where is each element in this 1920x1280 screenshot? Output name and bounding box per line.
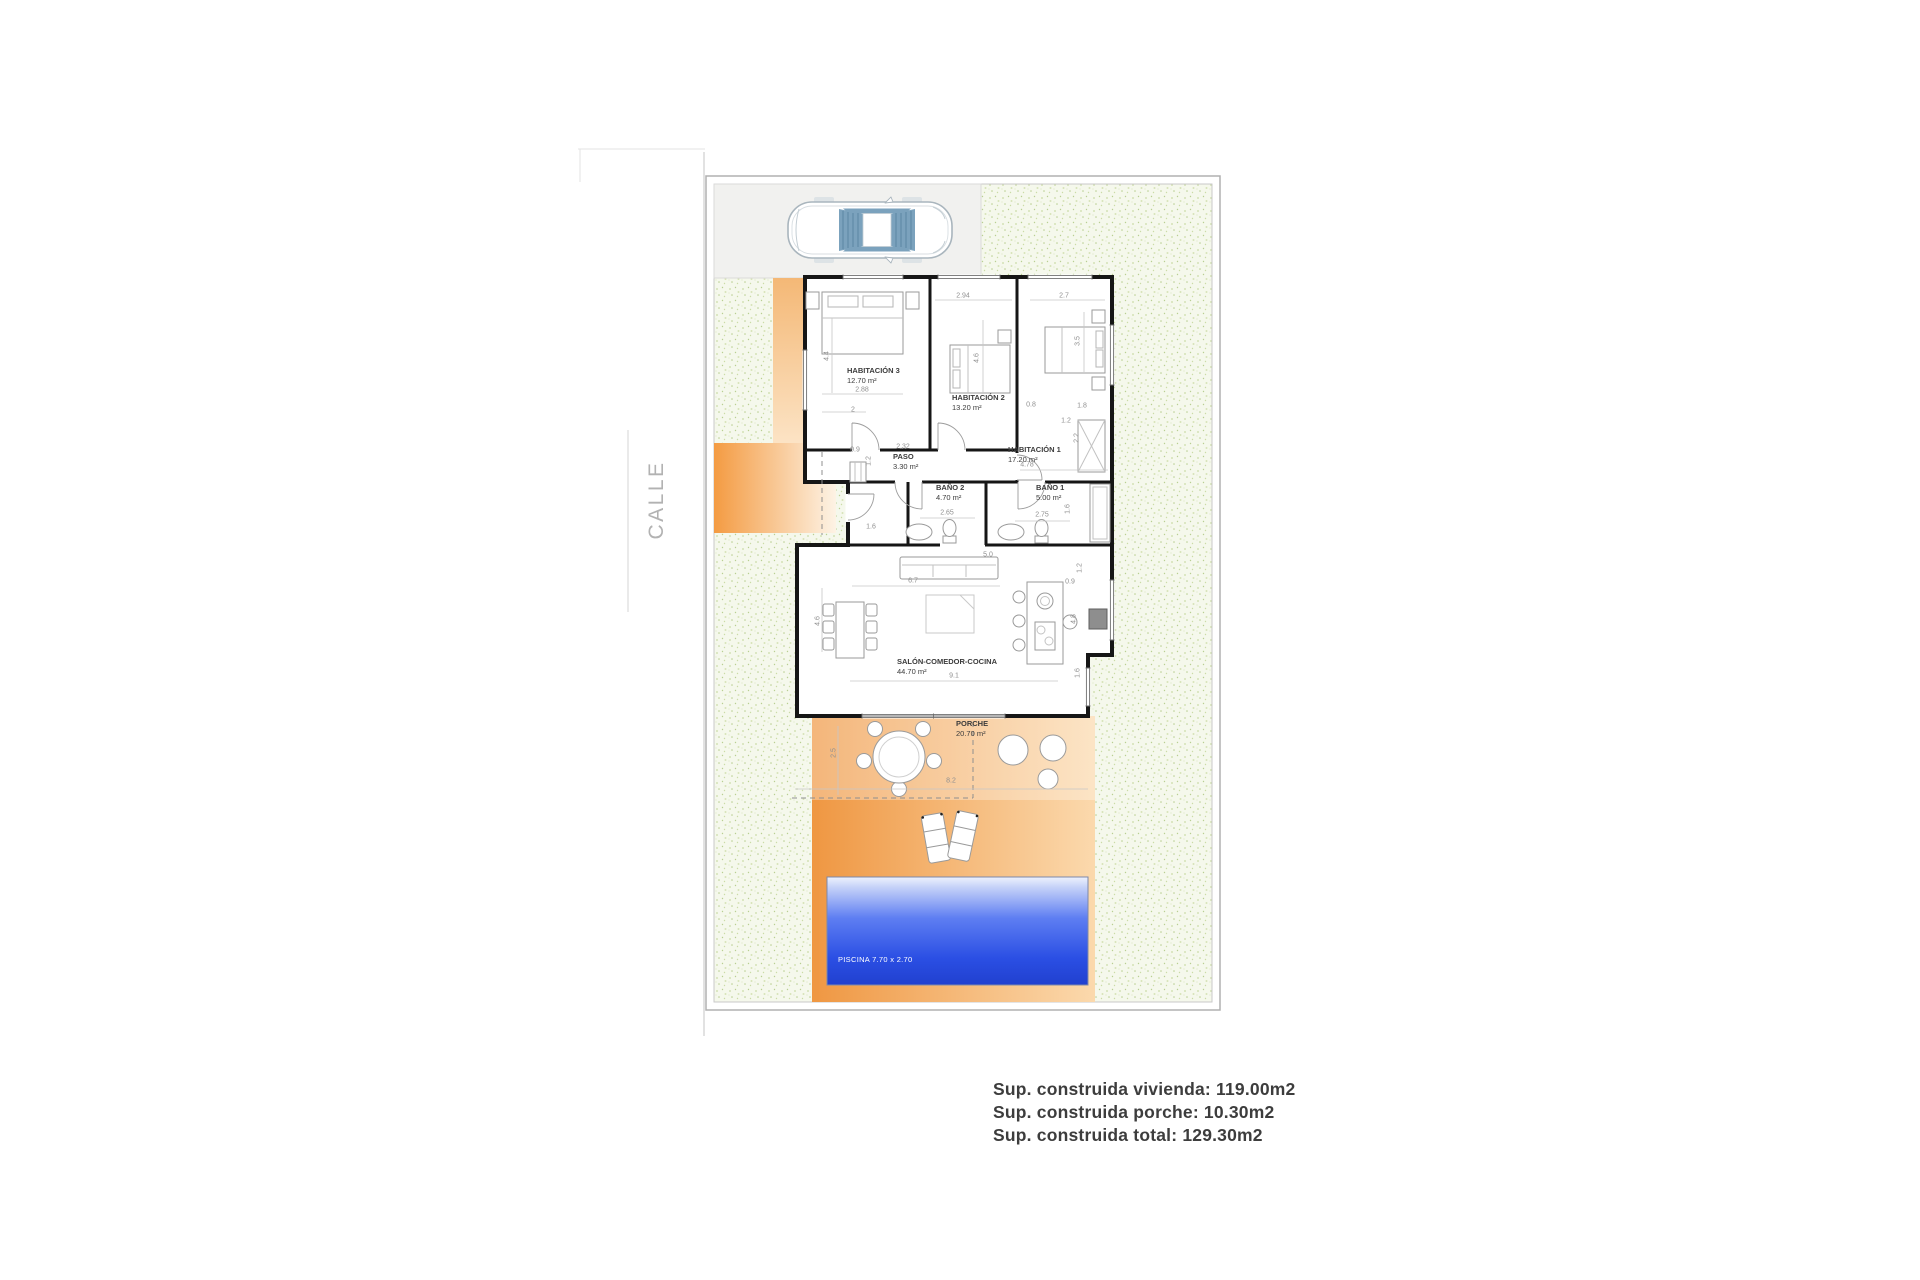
dimension-label: 4.6: [815, 616, 822, 626]
dimension-label: 5.0: [983, 552, 993, 559]
dimension-label: 1.8: [1077, 403, 1087, 410]
room-label-bano-1: BAÑO 1 5.00 m²: [1036, 483, 1064, 502]
dimension-label: 1.2: [1077, 563, 1084, 573]
dimension-label: 0.9: [1065, 579, 1075, 586]
car-top-view: [788, 197, 952, 263]
dimension-label: 2.32: [896, 444, 910, 451]
dimension-label: 2.94: [956, 293, 970, 300]
dimension-label: 4.78: [1020, 462, 1034, 469]
dimension-label: 2.5: [831, 748, 838, 758]
dimension-label: 2.65: [940, 510, 954, 517]
pool: [827, 877, 1088, 985]
dimension-label: 8.2: [946, 778, 956, 785]
room-label-habitacion-3: HABITACIÓN 3 12.70 m²: [847, 366, 900, 385]
dimension-label: 1.6: [1065, 504, 1072, 514]
room-label-habitacion-2: HABITACIÓN 2 13.20 m²: [952, 393, 1005, 412]
room-label-salon: SALÓN-COMEDOR-COCINA 44.70 m²: [897, 657, 997, 676]
built-area-summary: Sup. construida vivienda: 119.00m2 Sup. …: [993, 1078, 1295, 1147]
dimension-label: 3.5: [1075, 336, 1082, 346]
dimension-label: 1.6: [1075, 668, 1082, 678]
dimension-label: 4.6: [974, 353, 981, 363]
dimension-label: 2.2: [1074, 433, 1081, 443]
summary-vivienda: Sup. construida vivienda: 119.00m2: [993, 1078, 1295, 1101]
summary-total: Sup. construida total: 129.30m2: [993, 1124, 1295, 1147]
dimension-label: 4.8: [1071, 614, 1078, 624]
dimension-label: 2.75: [1035, 512, 1049, 519]
dimension-label: 1.2: [1061, 418, 1071, 425]
street-lines: [578, 149, 705, 1036]
summary-porche: Sup. construida porche: 10.30m2: [993, 1101, 1295, 1124]
street-label: CALLE: [645, 460, 669, 539]
room-label-paso: PASO 3.30 m²: [893, 452, 918, 471]
dimension-label: 2: [851, 407, 855, 414]
pool-label: PISCINA 7.70 x 2.70: [838, 955, 913, 964]
room-label-habitacion-1: HABITACIÓN 1 17.20 m²: [1008, 445, 1061, 464]
floor-plan-drawing: [0, 0, 1920, 1280]
dimension-label: 1.6: [866, 524, 876, 531]
room-label-porche: PORCHE 20.70 m²: [956, 719, 988, 738]
dimension-label: 2.88: [855, 387, 869, 394]
dimension-label: 0.9: [850, 447, 860, 454]
dimension-label: 9.1: [949, 673, 959, 680]
floor-plan-page: CALLE HABITACIÓN 3 12.70 m² HABITACIÓN 2…: [0, 0, 1920, 1280]
dimension-label: 4.4: [824, 351, 831, 361]
dimension-label: 6.7: [908, 578, 918, 585]
dimension-label: 0.8: [1026, 402, 1036, 409]
dimension-label: 2.7: [1059, 293, 1069, 300]
room-label-bano-2: BAÑO 2 4.70 m²: [936, 483, 964, 502]
dimension-label: 1.2: [866, 456, 873, 466]
